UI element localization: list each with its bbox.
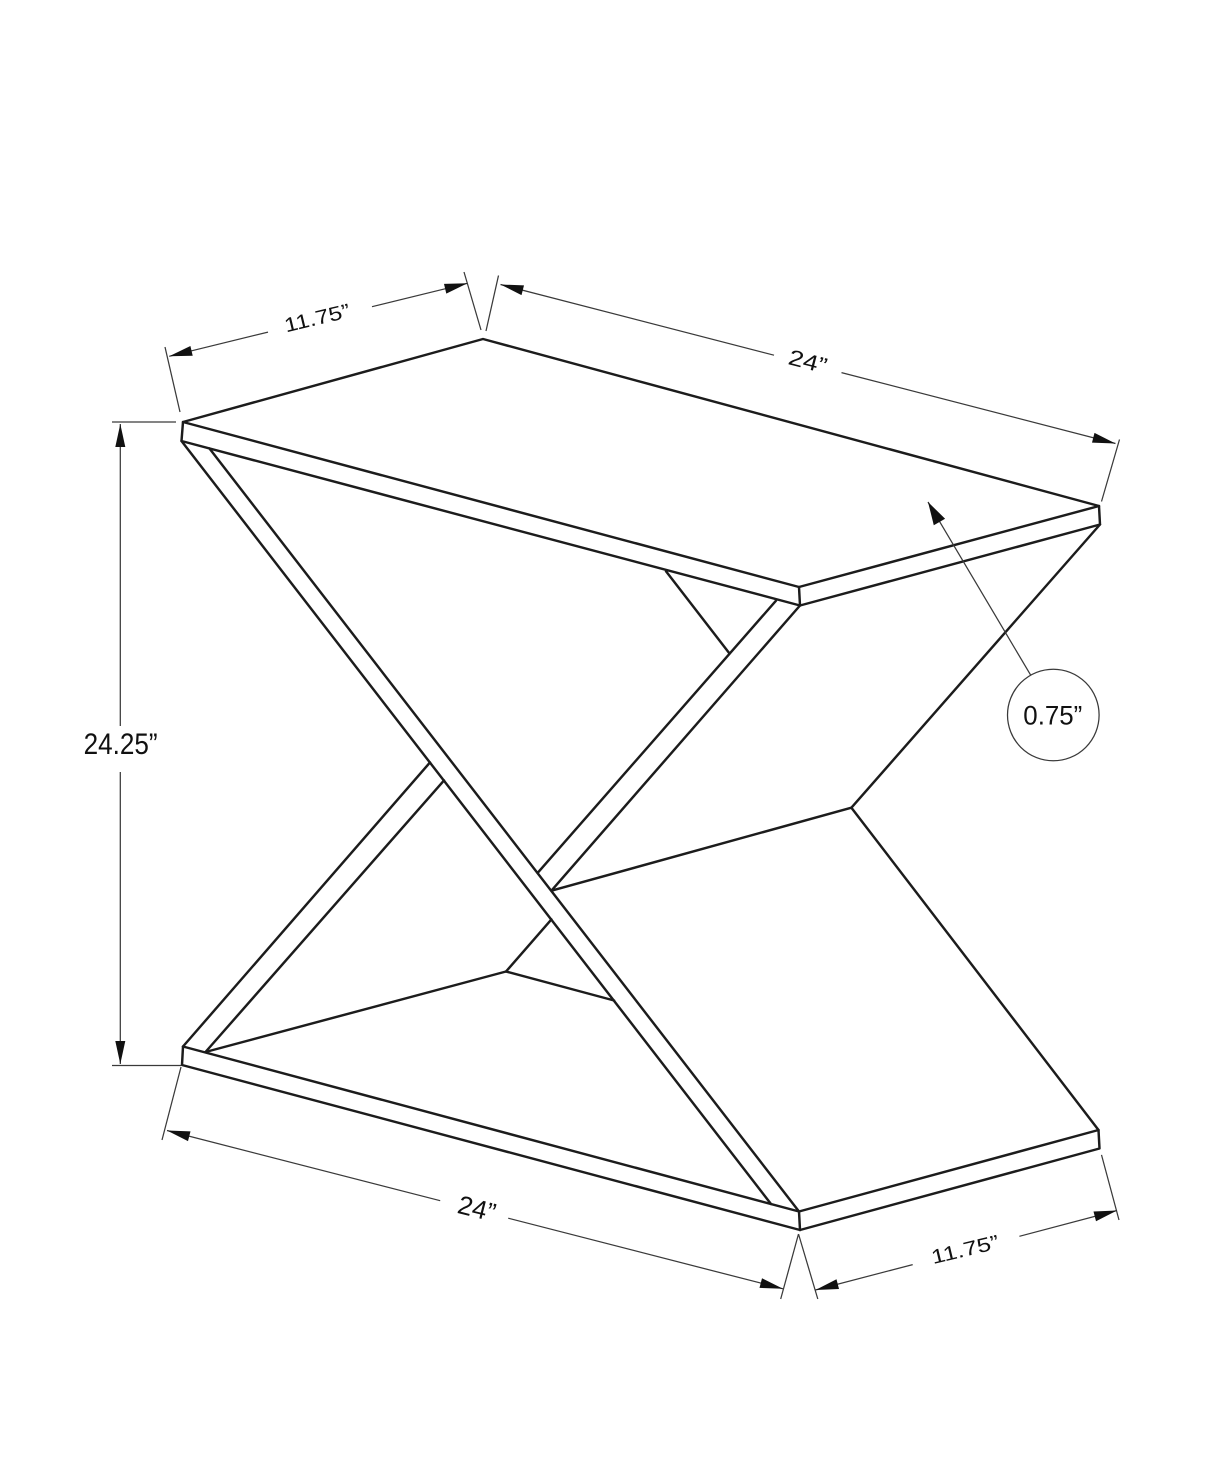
svg-text:24.25”: 24.25” [84, 728, 158, 761]
svg-text:0.75”: 0.75” [1023, 700, 1082, 730]
svg-text:11.75”: 11.75” [282, 300, 352, 337]
svg-text:11.75”: 11.75” [929, 1232, 1001, 1269]
svg-text:24”: 24” [786, 344, 830, 378]
svg-text:24”: 24” [455, 1189, 499, 1227]
